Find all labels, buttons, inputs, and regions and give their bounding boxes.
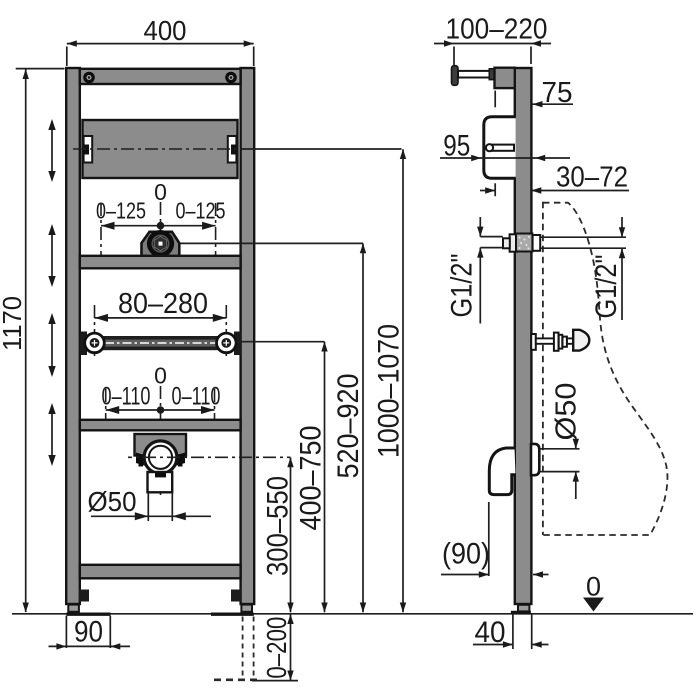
svg-text:0–110: 0–110 (172, 383, 221, 411)
svg-text:0–200: 0–200 (261, 617, 292, 679)
svg-text:1000–1070: 1000–1070 (373, 324, 406, 458)
svg-text:30–72: 30–72 (556, 162, 628, 194)
svg-text:0: 0 (154, 363, 167, 389)
svg-text:(90): (90) (442, 538, 490, 571)
svg-text:G1/2": G1/2" (445, 254, 478, 318)
svg-text:Ø50: Ø50 (551, 383, 583, 441)
svg-text:100–220: 100–220 (446, 14, 548, 46)
svg-text:1170: 1170 (0, 296, 27, 351)
svg-text:0: 0 (586, 572, 601, 602)
svg-text:0–125: 0–125 (176, 198, 226, 224)
svg-text:80–280: 80–280 (118, 288, 208, 320)
svg-text:0–125: 0–125 (96, 198, 146, 224)
svg-text:520–920: 520–920 (332, 374, 365, 479)
svg-text:400: 400 (144, 15, 187, 46)
svg-text:400–750: 400–750 (295, 426, 328, 531)
svg-text:300–550: 300–550 (261, 476, 294, 576)
svg-text:90: 90 (74, 616, 103, 649)
svg-text:0–110: 0–110 (102, 383, 151, 411)
svg-text:Ø50: Ø50 (88, 486, 137, 517)
svg-text:0: 0 (154, 179, 167, 205)
svg-text:G1/2": G1/2" (590, 255, 623, 319)
